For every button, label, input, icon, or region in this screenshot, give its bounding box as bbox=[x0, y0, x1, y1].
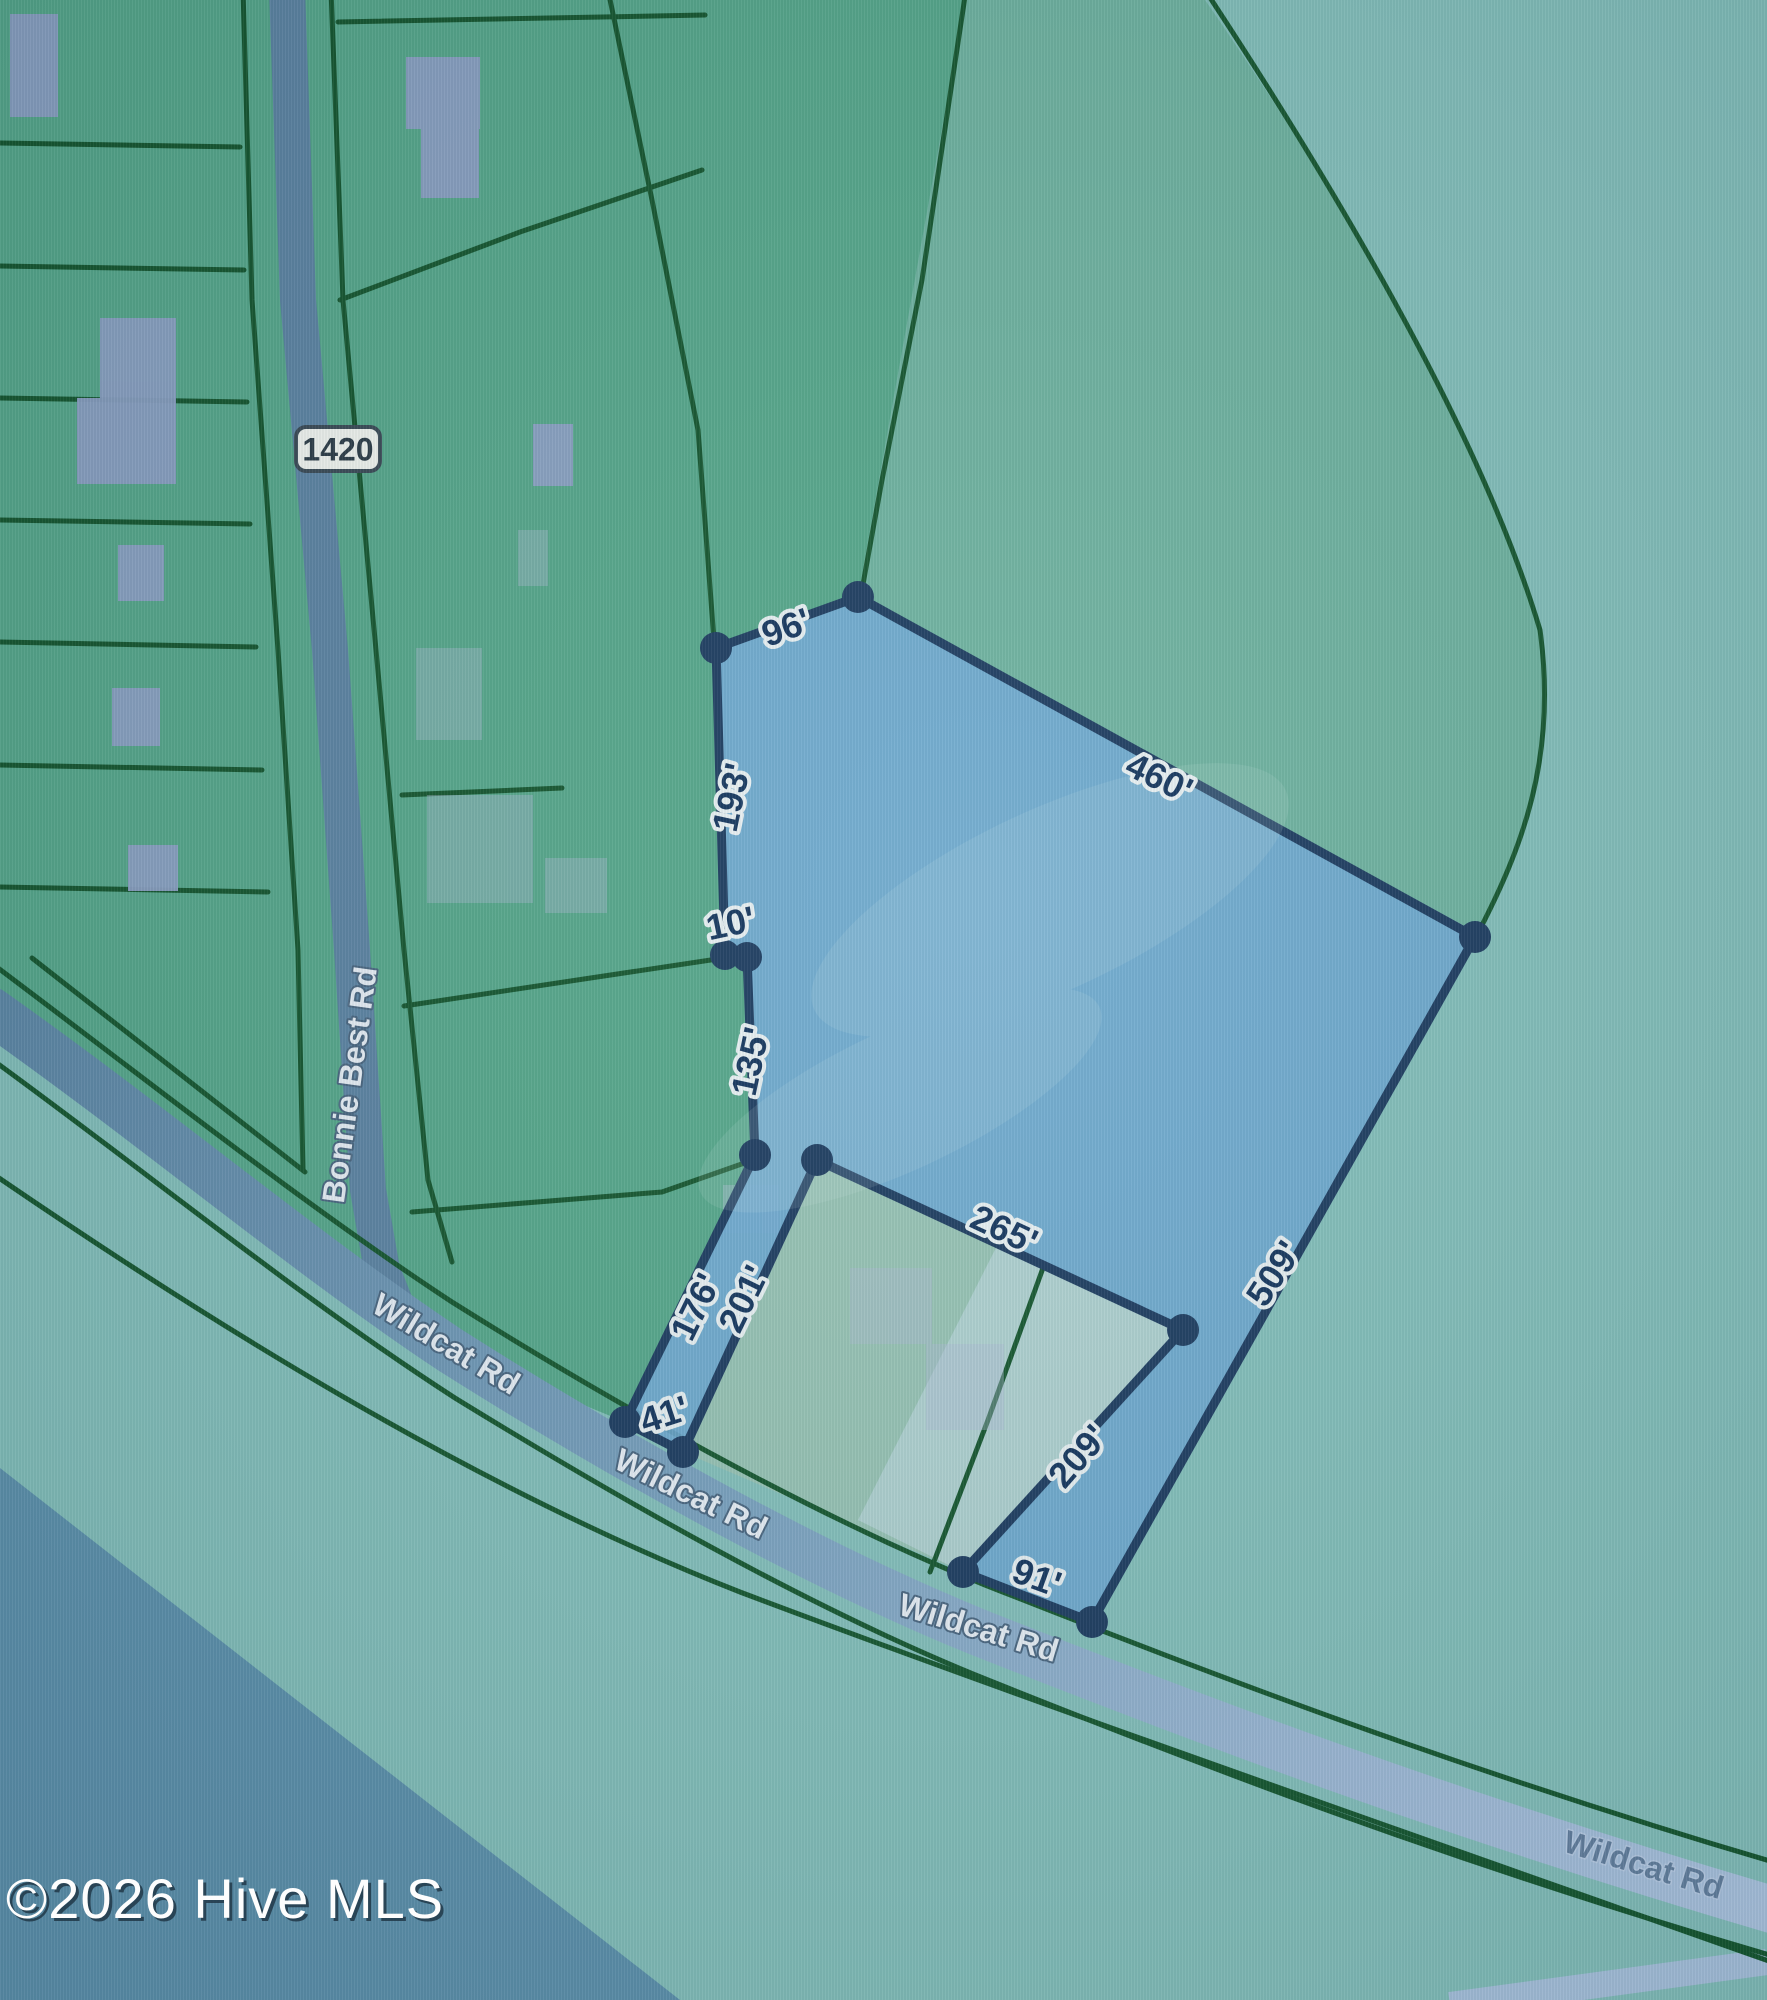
building-footprint bbox=[533, 424, 573, 486]
parcel-vertex bbox=[609, 1406, 641, 1438]
parcel-vertex bbox=[732, 942, 762, 972]
building-footprint bbox=[112, 688, 160, 746]
building-footprint-faint bbox=[926, 1344, 1004, 1430]
building-footprint bbox=[421, 128, 479, 198]
building-footprint bbox=[33, 62, 57, 117]
parcel-vertex bbox=[739, 1139, 771, 1171]
parcel-vertex bbox=[700, 632, 732, 664]
building-footprint bbox=[100, 318, 176, 400]
building-footprint-faint bbox=[416, 648, 482, 740]
mls-watermark: ©2026 Hive MLS bbox=[6, 1866, 444, 1931]
building-footprint bbox=[128, 845, 178, 891]
parcel-map-screenshot: 96' 460' 193' 10' 135' 176' 201' 41' 265… bbox=[0, 0, 1767, 2000]
parcel-map-canvas: 96' 460' 193' 10' 135' 176' 201' 41' 265… bbox=[0, 0, 1767, 2000]
building-footprint-faint bbox=[850, 1268, 932, 1344]
parcel-vertex bbox=[1076, 1606, 1108, 1638]
parcel-vertex bbox=[947, 1556, 979, 1588]
building-footprint bbox=[77, 398, 176, 484]
building-footprint bbox=[406, 57, 480, 129]
building-footprint-faint bbox=[518, 530, 548, 586]
building-footprint bbox=[118, 545, 164, 601]
parcel-vertex bbox=[1459, 921, 1491, 953]
route-badge-number: 1420 bbox=[302, 431, 373, 467]
building-footprint-faint bbox=[427, 795, 533, 903]
parcel-vertex bbox=[801, 1144, 833, 1176]
parcel-vertex bbox=[842, 581, 874, 613]
route-badge-1420: 1420 bbox=[296, 427, 380, 471]
building-footprint-faint bbox=[545, 858, 607, 913]
parcel-vertex bbox=[1167, 1314, 1199, 1346]
